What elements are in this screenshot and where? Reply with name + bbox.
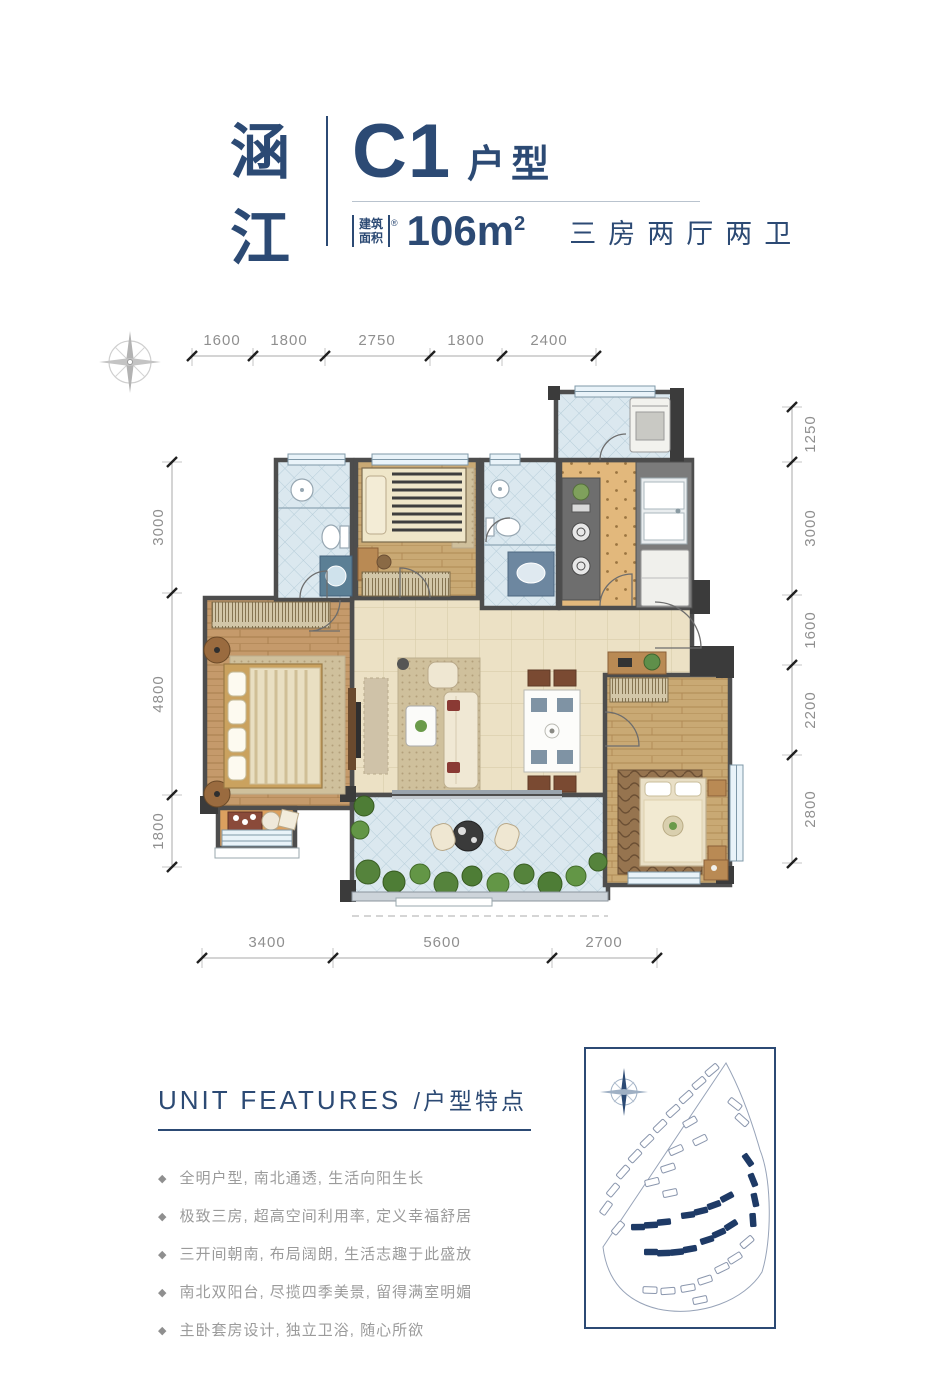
diamond-bullet-icon: ◆: [158, 1211, 167, 1223]
dimension-label: 1800: [270, 332, 307, 349]
dimension-label: 2800: [802, 790, 819, 827]
floor-plan-page: 涵 江 C1 户型 建筑面积 ® 106m2 三房两厅两卫: [0, 0, 933, 1400]
features-title-en: UNIT FEATURES: [158, 1085, 401, 1115]
dimension-left: 3000 4800 1800: [150, 457, 182, 872]
feature-list: ◆全明户型, 南北通透, 生活向阳生长 ◆极致三房, 超高空间利用率, 定义幸福…: [158, 1167, 618, 1340]
diamond-bullet-icon: ◆: [158, 1249, 167, 1261]
dimension-label: 1600: [203, 332, 240, 349]
dimension-label: 5600: [423, 934, 460, 951]
dimension-label: 3000: [150, 508, 167, 545]
dimension-label: 2200: [802, 691, 819, 728]
dimension-label: 2700: [585, 934, 622, 951]
features-title-zh: /户型特点: [414, 1088, 527, 1114]
diamond-bullet-icon: ◆: [158, 1173, 167, 1185]
dimension-label: 2400: [530, 332, 567, 349]
feature-item: ◆南北双阳台, 尽揽四季美景, 留得满室明媚: [158, 1281, 618, 1302]
dimension-label: 1600: [802, 611, 819, 648]
compass-icon: [99, 331, 161, 393]
dimension-bottom: 3400 5600 2700: [197, 934, 662, 968]
dimension-label: 4800: [150, 675, 167, 712]
dimension-top: 1600 1800 2750 1800 2400: [187, 332, 601, 366]
dimension-label: 1800: [150, 812, 167, 849]
dimension-label: 1800: [447, 332, 484, 349]
dimension-right: 1250 3000 1600 2200 2800: [782, 402, 819, 868]
feature-item: ◆全明户型, 南北通透, 生活向阳生长: [158, 1167, 618, 1188]
diamond-bullet-icon: ◆: [158, 1287, 167, 1299]
feature-item: ◆三开间朝南, 布局阔朗, 生活志趣于此盛放: [158, 1243, 618, 1264]
feature-item: ◆极致三房, 超高空间利用率, 定义幸福舒居: [158, 1205, 618, 1226]
dimension-label: 2750: [358, 332, 395, 349]
dimension-label: 3400: [248, 934, 285, 951]
dimension-label: 3000: [802, 509, 819, 546]
diamond-bullet-icon: ◆: [158, 1325, 167, 1337]
unit-features-section: UNIT FEATURES /户型特点 ◆全明户型, 南北通透, 生活向阳生长 …: [158, 1082, 618, 1357]
dimension-label: 1250: [802, 415, 819, 452]
feature-item: ◆主卧套房设计, 独立卫浴, 随心所欲: [158, 1319, 618, 1340]
features-title: UNIT FEATURES /户型特点: [158, 1082, 531, 1131]
